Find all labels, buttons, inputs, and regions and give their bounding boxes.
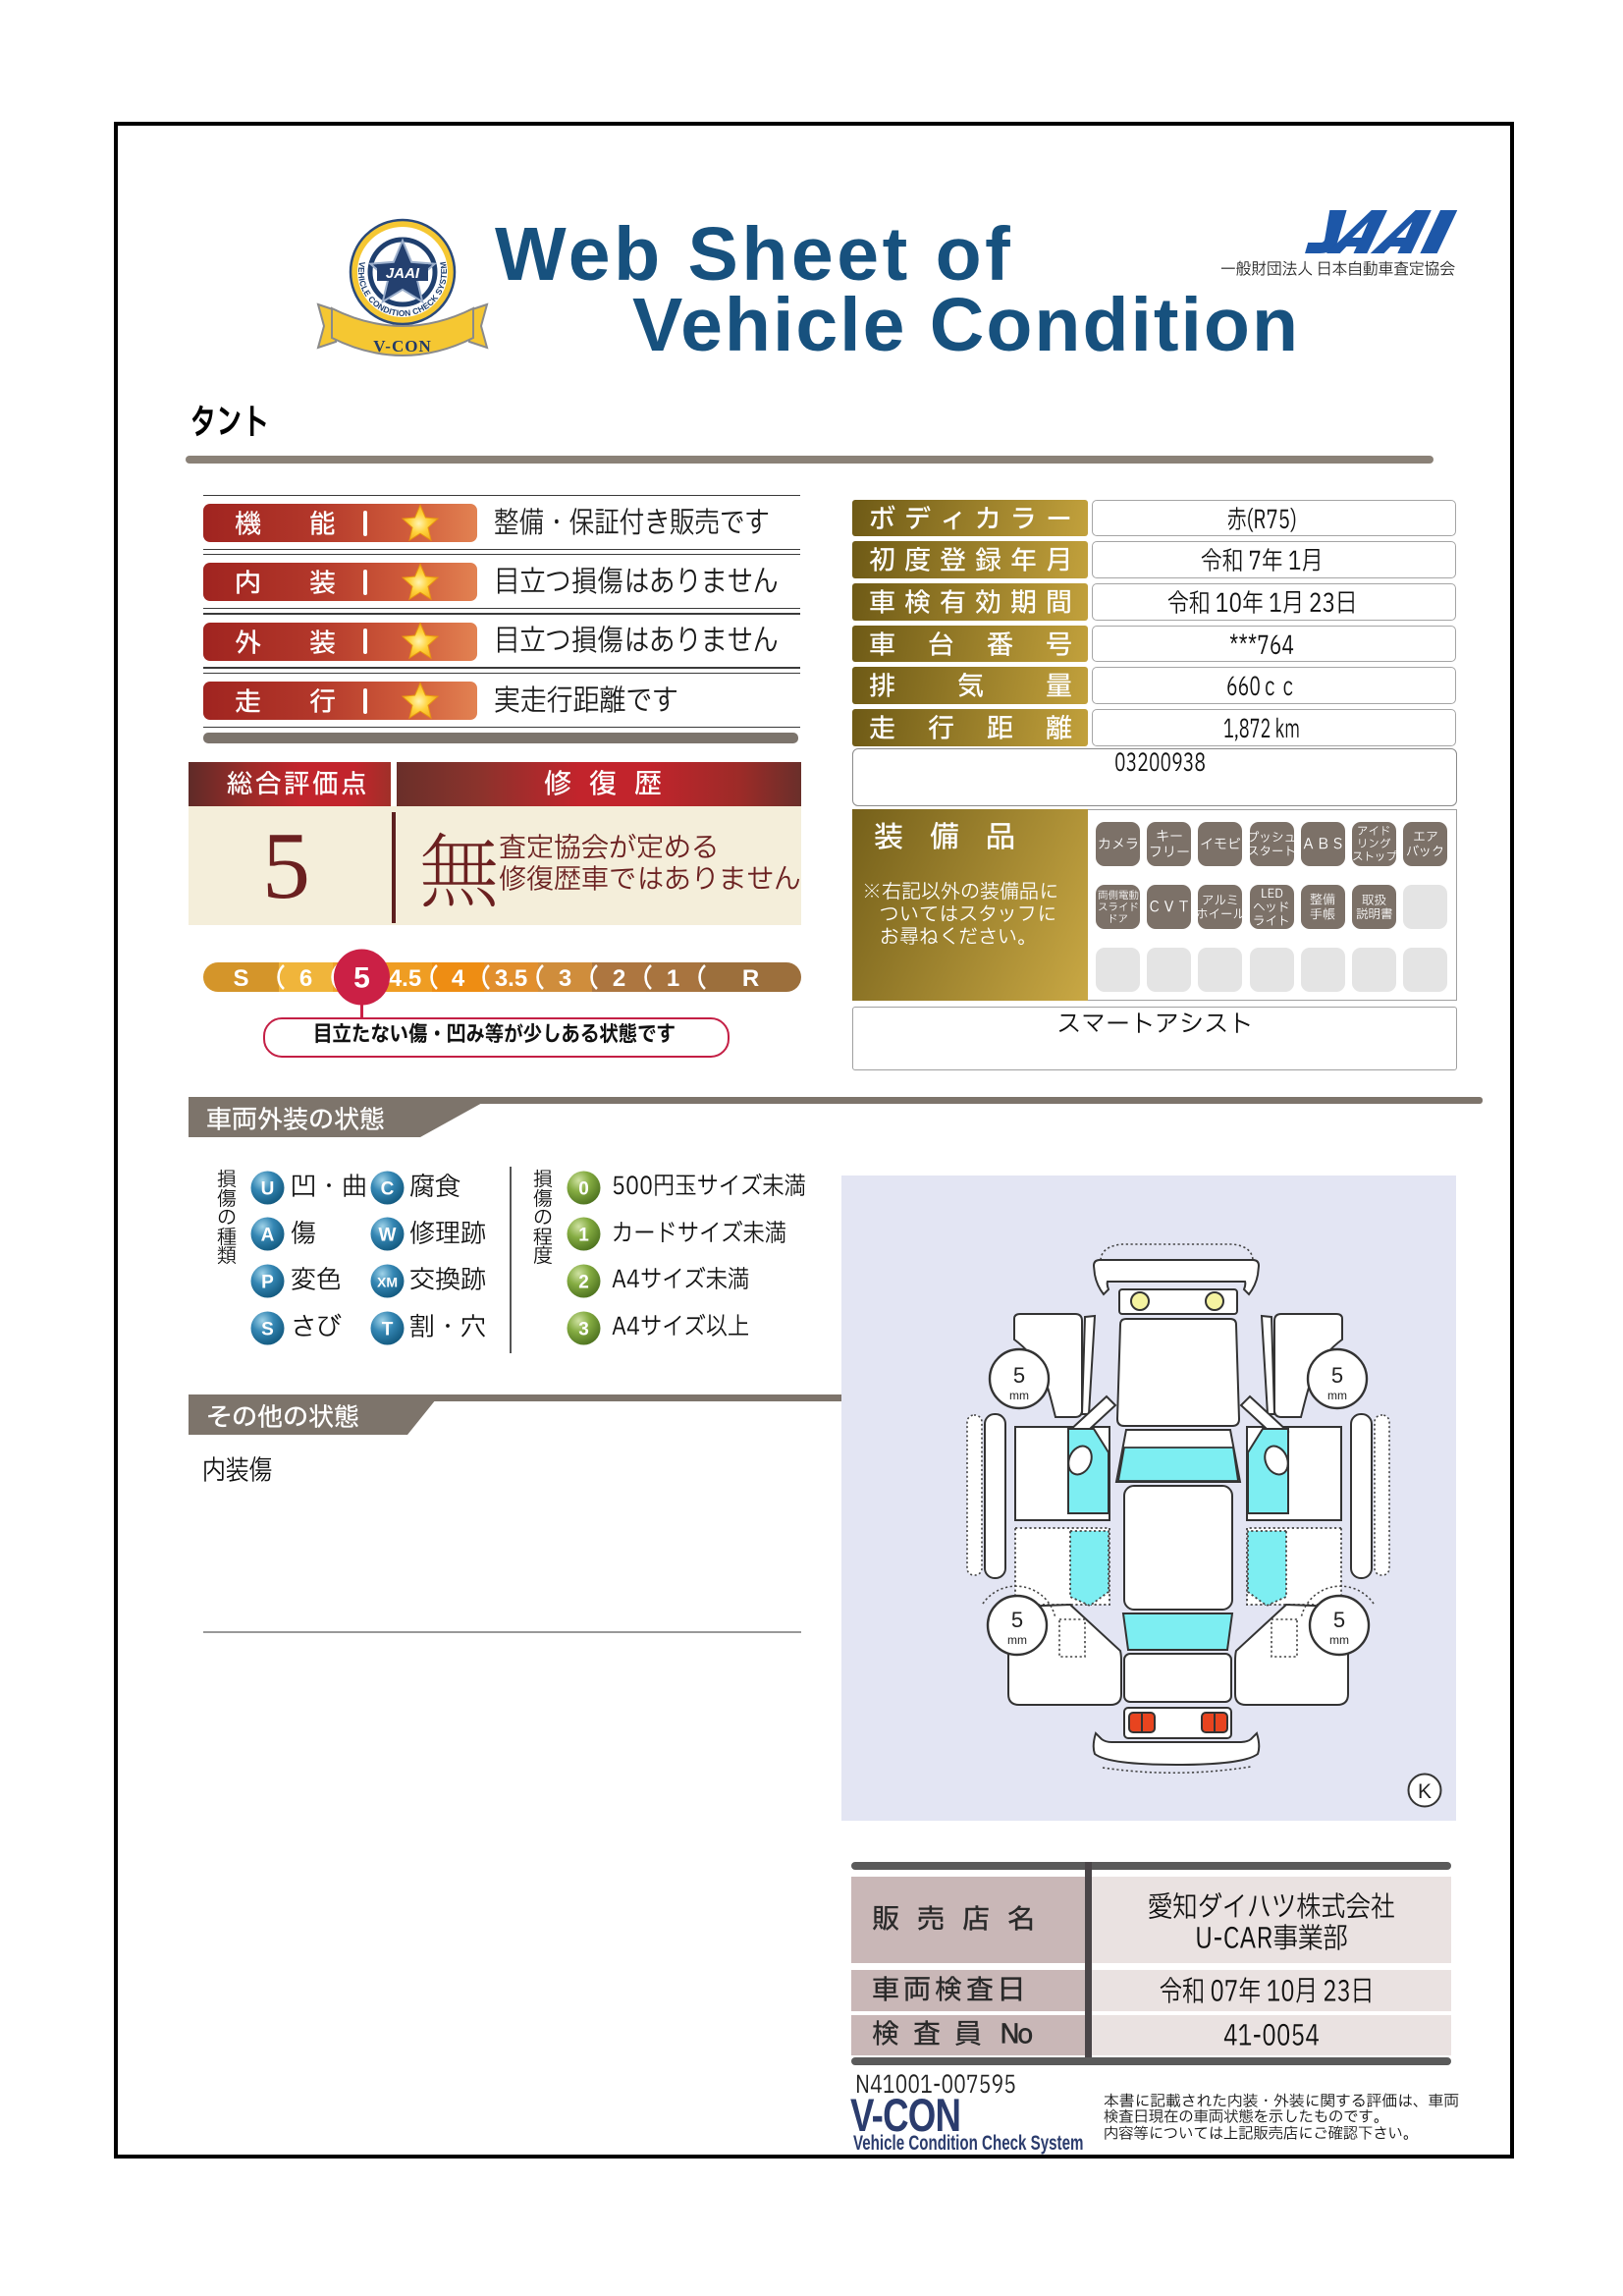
svg-text:JAAI: JAAI xyxy=(386,265,420,282)
svg-text:5: 5 xyxy=(1331,1363,1343,1388)
svg-text:3.5: 3.5 xyxy=(495,965,527,992)
svg-text:W: W xyxy=(378,1226,396,1246)
svg-text:1: 1 xyxy=(667,965,679,992)
svg-text:3: 3 xyxy=(559,965,571,992)
svg-text:mm: mm xyxy=(1329,1633,1349,1647)
svg-text:2: 2 xyxy=(613,965,625,992)
svg-text:XM: XM xyxy=(377,1274,398,1289)
svg-text:5: 5 xyxy=(1013,1363,1025,1388)
svg-text:5: 5 xyxy=(1011,1608,1023,1632)
svg-text:A: A xyxy=(260,1226,274,1246)
svg-text:P: P xyxy=(261,1272,274,1292)
svg-text:R: R xyxy=(742,965,759,992)
svg-text:S: S xyxy=(261,1319,274,1339)
svg-text:0: 0 xyxy=(578,1178,589,1199)
svg-text:3: 3 xyxy=(578,1319,589,1339)
svg-text:mm: mm xyxy=(1327,1389,1347,1402)
svg-text:T: T xyxy=(381,1319,393,1339)
svg-text:K: K xyxy=(1418,1780,1432,1803)
svg-text:5: 5 xyxy=(353,962,370,995)
svg-text:mm: mm xyxy=(1007,1633,1027,1647)
svg-text:2: 2 xyxy=(578,1272,589,1292)
svg-text:mm: mm xyxy=(1009,1389,1029,1402)
svg-text:4: 4 xyxy=(452,965,465,992)
svg-text:4.5: 4.5 xyxy=(389,965,421,992)
svg-text:C: C xyxy=(380,1178,394,1199)
svg-text:U: U xyxy=(260,1178,274,1199)
svg-text:V-CON: V-CON xyxy=(373,337,431,355)
svg-text:6: 6 xyxy=(299,965,312,992)
svg-text:5: 5 xyxy=(1333,1608,1345,1632)
svg-text:1: 1 xyxy=(578,1226,589,1246)
svg-text:S: S xyxy=(233,965,248,992)
